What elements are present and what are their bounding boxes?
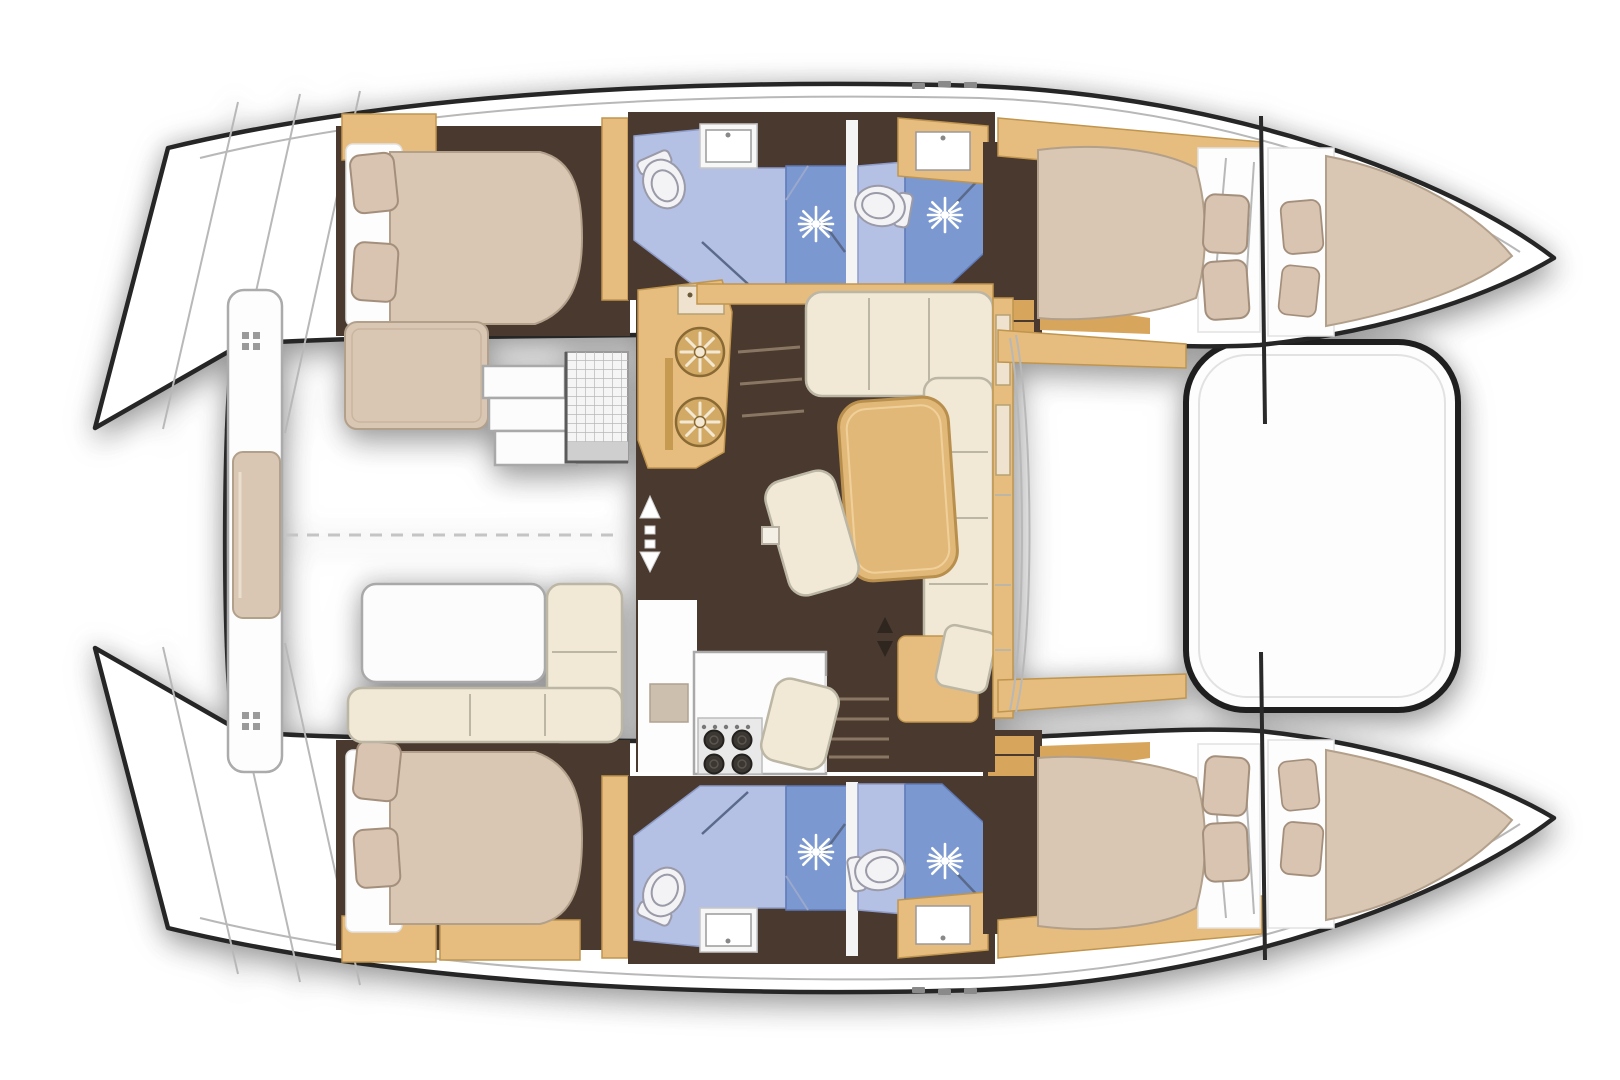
galley-aft-counter <box>638 280 732 468</box>
pillow-icon <box>351 242 399 303</box>
galley-round-sink-icon <box>676 328 724 376</box>
pillow-icon <box>352 740 402 802</box>
liferaft-locker <box>566 352 628 462</box>
pillow-icon <box>353 828 401 889</box>
burner-icon <box>705 731 724 750</box>
boat-floor-plan <box>0 0 1620 1080</box>
burner-icon <box>733 731 752 750</box>
pillow-icon <box>349 152 399 214</box>
burner-icon <box>705 755 724 774</box>
burner-icon <box>733 755 752 774</box>
double-bed <box>1038 147 1205 319</box>
pillow-icon <box>1202 260 1250 321</box>
shower-spray-icon <box>928 198 962 232</box>
pillow-icon <box>1278 759 1320 812</box>
double-bed <box>390 752 582 924</box>
shower-spray-icon <box>928 844 962 878</box>
wardrobe <box>602 118 628 300</box>
starboard-forward-cabin <box>983 730 1262 958</box>
shower-spray-icon <box>799 835 833 869</box>
bow-trampoline <box>1186 342 1458 710</box>
starboard-aft-cabin <box>336 740 630 962</box>
starboard-hull-steps <box>826 676 891 772</box>
locker <box>440 920 580 960</box>
aft-cockpit <box>225 290 628 772</box>
catamaran <box>95 81 1554 995</box>
port-forepeak-berth <box>1268 148 1512 336</box>
pillow-icon <box>1202 756 1250 817</box>
door-threshold <box>650 684 688 722</box>
pillow-icon <box>1278 265 1320 318</box>
saloon <box>636 280 1013 774</box>
sofa-corner-cushion <box>934 623 998 694</box>
foredeck <box>998 330 1186 712</box>
cockpit-steps <box>483 366 577 465</box>
pillow-icon <box>1280 821 1324 876</box>
cockpit-sunpad <box>345 322 488 429</box>
pillow-icon <box>1203 822 1250 882</box>
floor-plan-canvas <box>0 0 1620 1080</box>
cockpit-table <box>362 584 545 682</box>
starboard-forepeak-berth <box>1268 740 1512 928</box>
shower-spray-icon <box>799 207 833 241</box>
double-bed <box>390 152 582 324</box>
pillow-icon <box>1280 199 1324 254</box>
aft-beam-bench <box>228 290 282 772</box>
galley-round-sink-icon <box>676 398 724 446</box>
port-aft-cabin <box>336 114 630 336</box>
pillow-icon <box>1203 194 1250 254</box>
foredeck-step <box>998 674 1186 712</box>
wardrobe <box>602 776 628 958</box>
port-forward-cabin <box>983 118 1262 346</box>
double-bed <box>1038 757 1205 929</box>
mast-post <box>762 527 779 544</box>
